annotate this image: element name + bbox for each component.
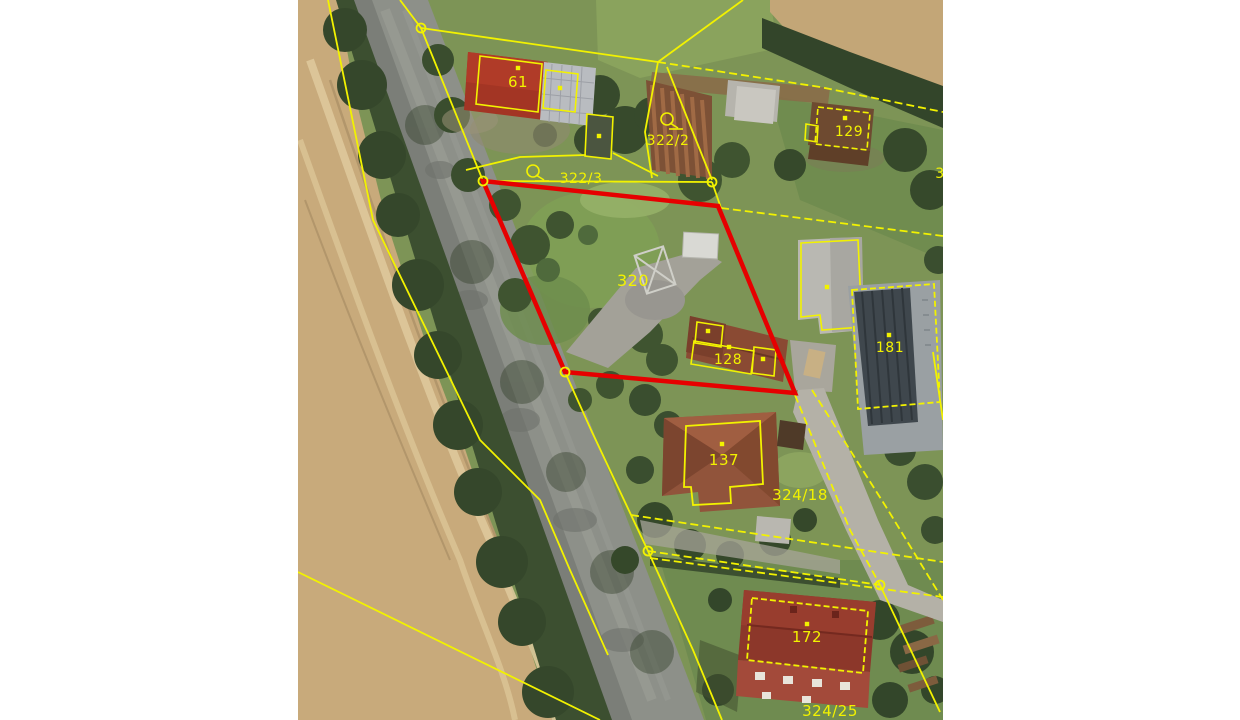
parcel-label-137: 137 [709,451,739,469]
building-dot [727,345,731,349]
building-dot [597,134,601,138]
parcel-label-324/25: 324/25 [802,702,858,720]
aerial-photo-canvas[interactable]: 61322/2129322/33320128181137324/18172324… [298,0,943,720]
grey-shed-south [755,516,791,544]
building-181 [848,280,943,455]
building-dot [887,333,891,337]
building-dot [825,285,829,289]
parcel-label-172: 172 [792,628,822,646]
building-dot [805,622,809,626]
building-dot [558,86,562,90]
parcel-label-181: 181 [876,340,904,356]
parcel-label-322/3: 322/3 [560,171,603,187]
parcel-label-320: 320 [617,271,649,290]
building-dot [843,116,847,120]
parcel-label-61: 61 [508,73,528,91]
dark-shed [777,420,806,450]
parcel-label-322/2: 322/2 [647,133,690,149]
cadastral-map-page: 61322/2129322/33320128181137324/18172324… [0,0,1240,720]
building-dot [516,66,520,70]
map-svg: 61322/2129322/33320128181137324/18172324… [298,0,943,720]
building-dot [706,329,710,333]
building-dot [761,357,765,361]
right-margin [943,0,1240,720]
white-shed [682,232,718,259]
parcel-label-3: 3 [935,166,943,182]
parcel-label-128: 128 [714,352,742,368]
parcel-label-324/18: 324/18 [772,486,828,504]
parcel-label-129: 129 [835,124,863,140]
left-margin [0,0,298,720]
building-dot [720,442,724,446]
